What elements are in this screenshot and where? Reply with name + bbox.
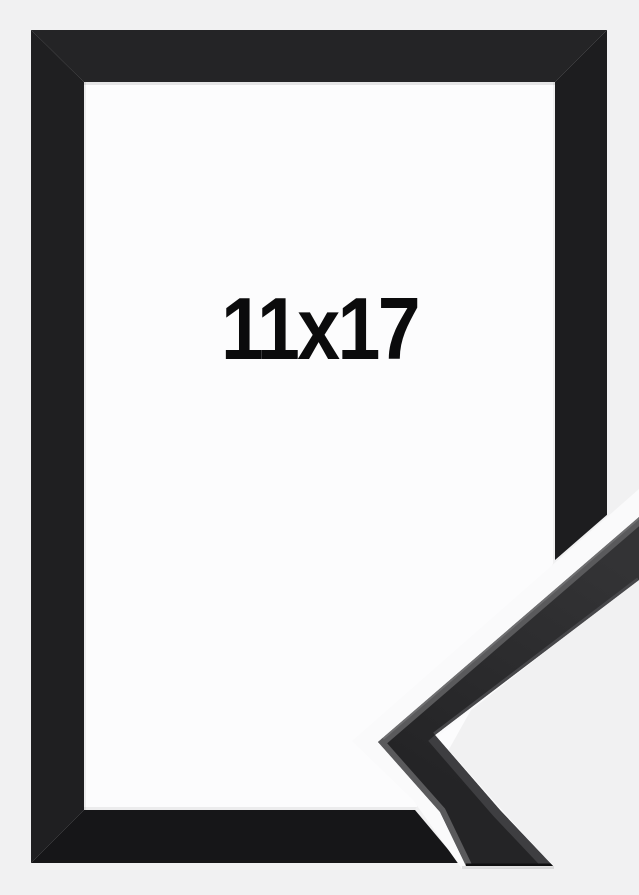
frame-top-bar xyxy=(31,30,607,82)
profile-sample-shadow xyxy=(462,866,554,869)
product-photo-black-frame: 11x17 xyxy=(0,0,639,895)
frame-photo-canvas: 11x17 xyxy=(0,0,639,895)
size-label: 11x17 xyxy=(221,279,418,378)
frame-left-bar xyxy=(31,30,84,863)
